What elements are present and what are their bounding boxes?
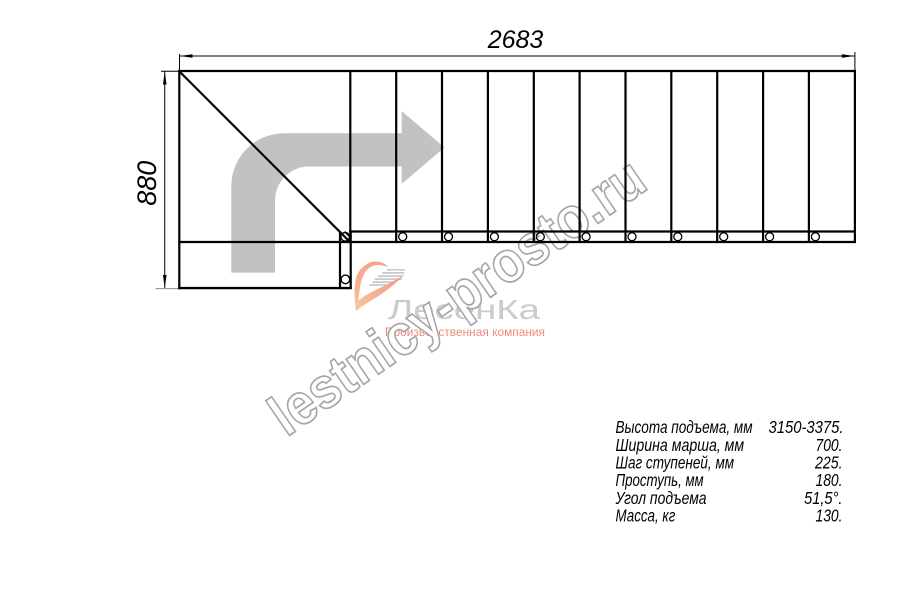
svg-text:Масса, кг: Масса, кг [616, 505, 676, 525]
svg-text:880: 880 [132, 161, 162, 206]
svg-text:130.: 130. [816, 505, 843, 525]
svg-text:2683: 2683 [487, 26, 544, 54]
svg-text:lestnicy-prosto.ru: lestnicy-prosto.ru [257, 145, 657, 448]
